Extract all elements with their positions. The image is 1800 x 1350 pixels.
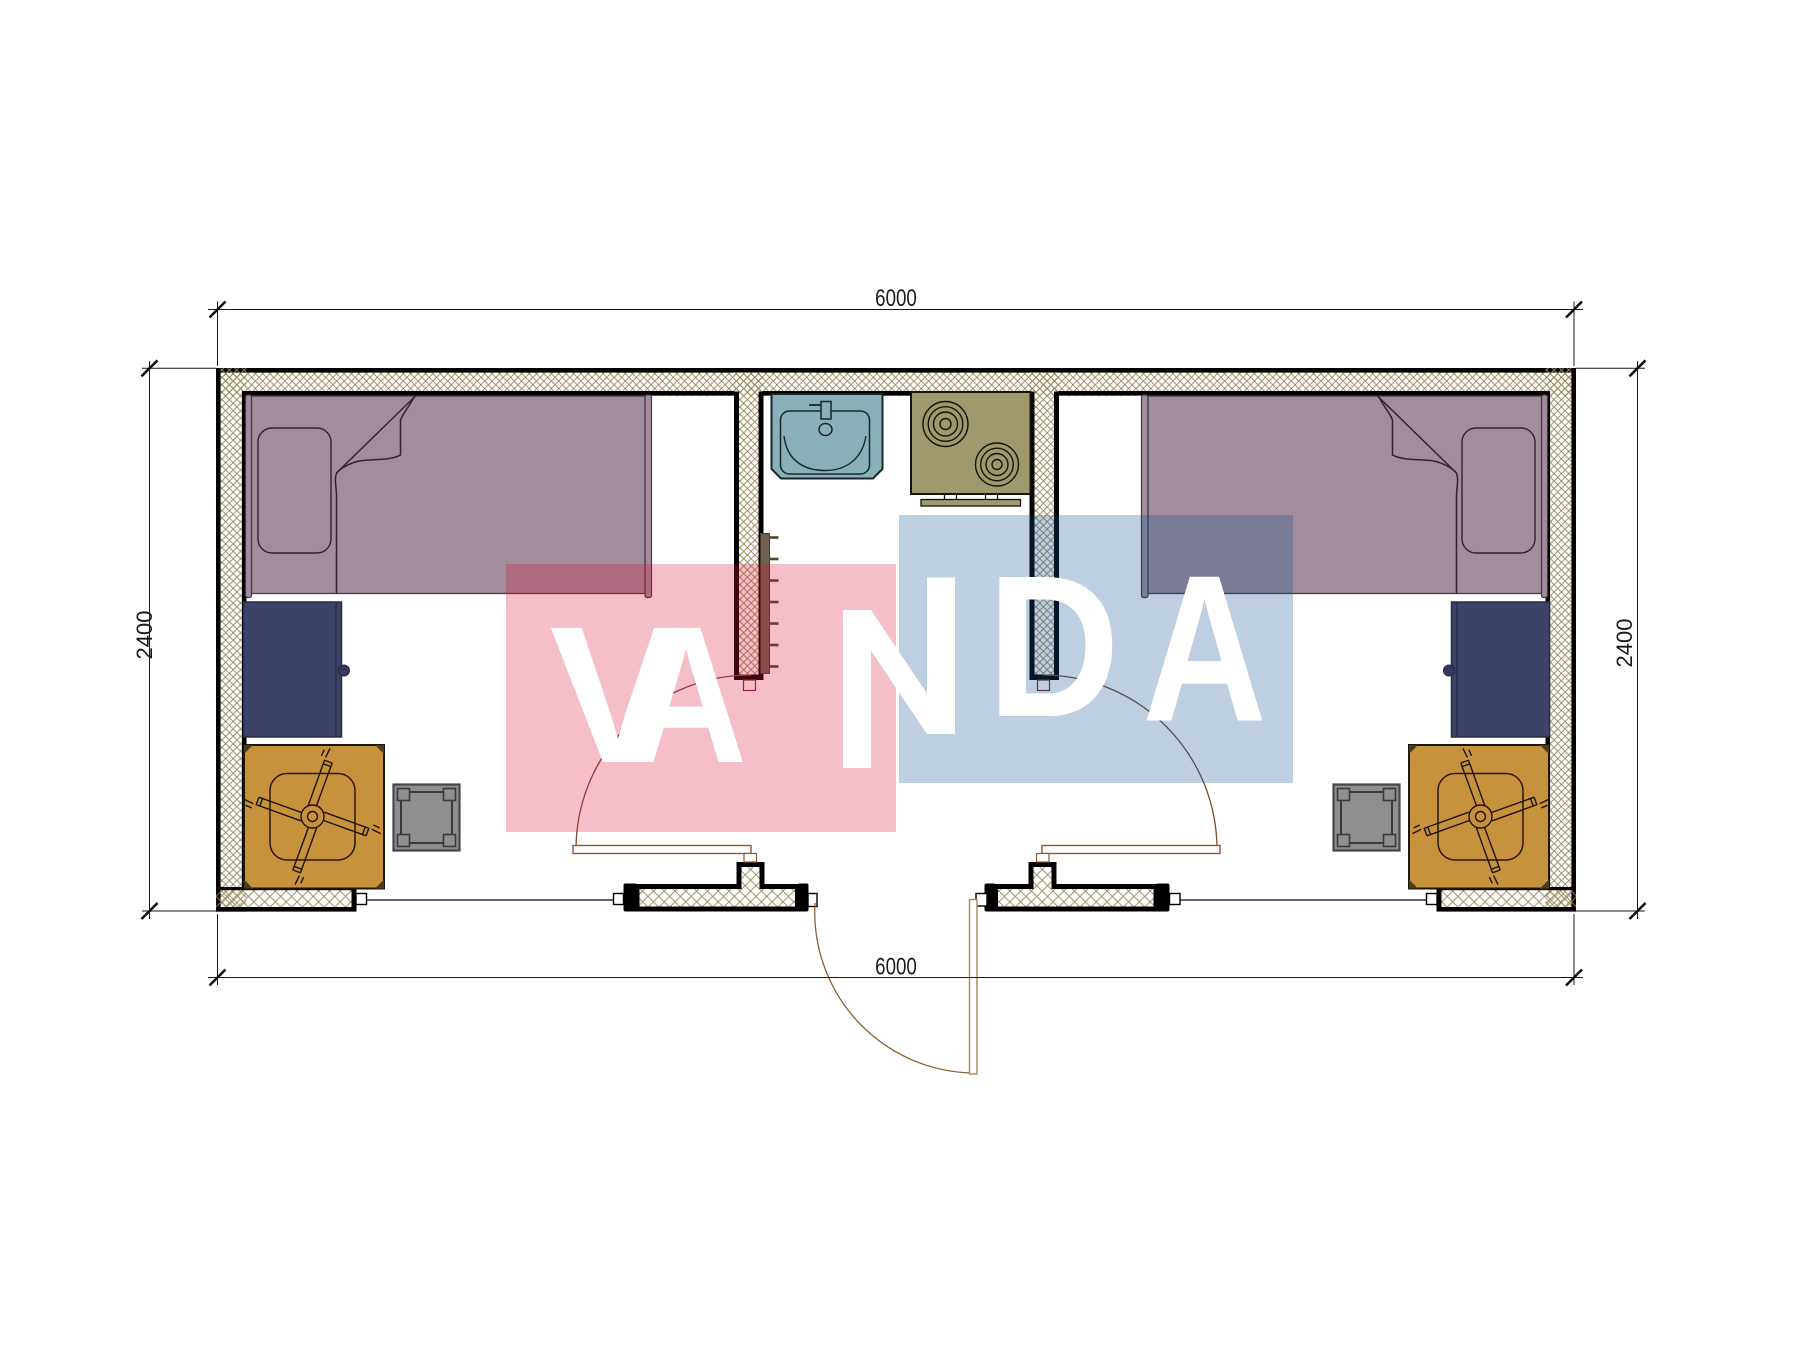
- svg-text:6000: 6000: [875, 953, 917, 980]
- svg-text:A: A: [625, 586, 748, 804]
- svg-text:2400: 2400: [1612, 619, 1637, 668]
- svg-text:6000: 6000: [875, 285, 917, 312]
- svg-text:D: D: [987, 533, 1120, 759]
- svg-text:A: A: [1142, 532, 1267, 765]
- svg-text:2400: 2400: [132, 611, 157, 660]
